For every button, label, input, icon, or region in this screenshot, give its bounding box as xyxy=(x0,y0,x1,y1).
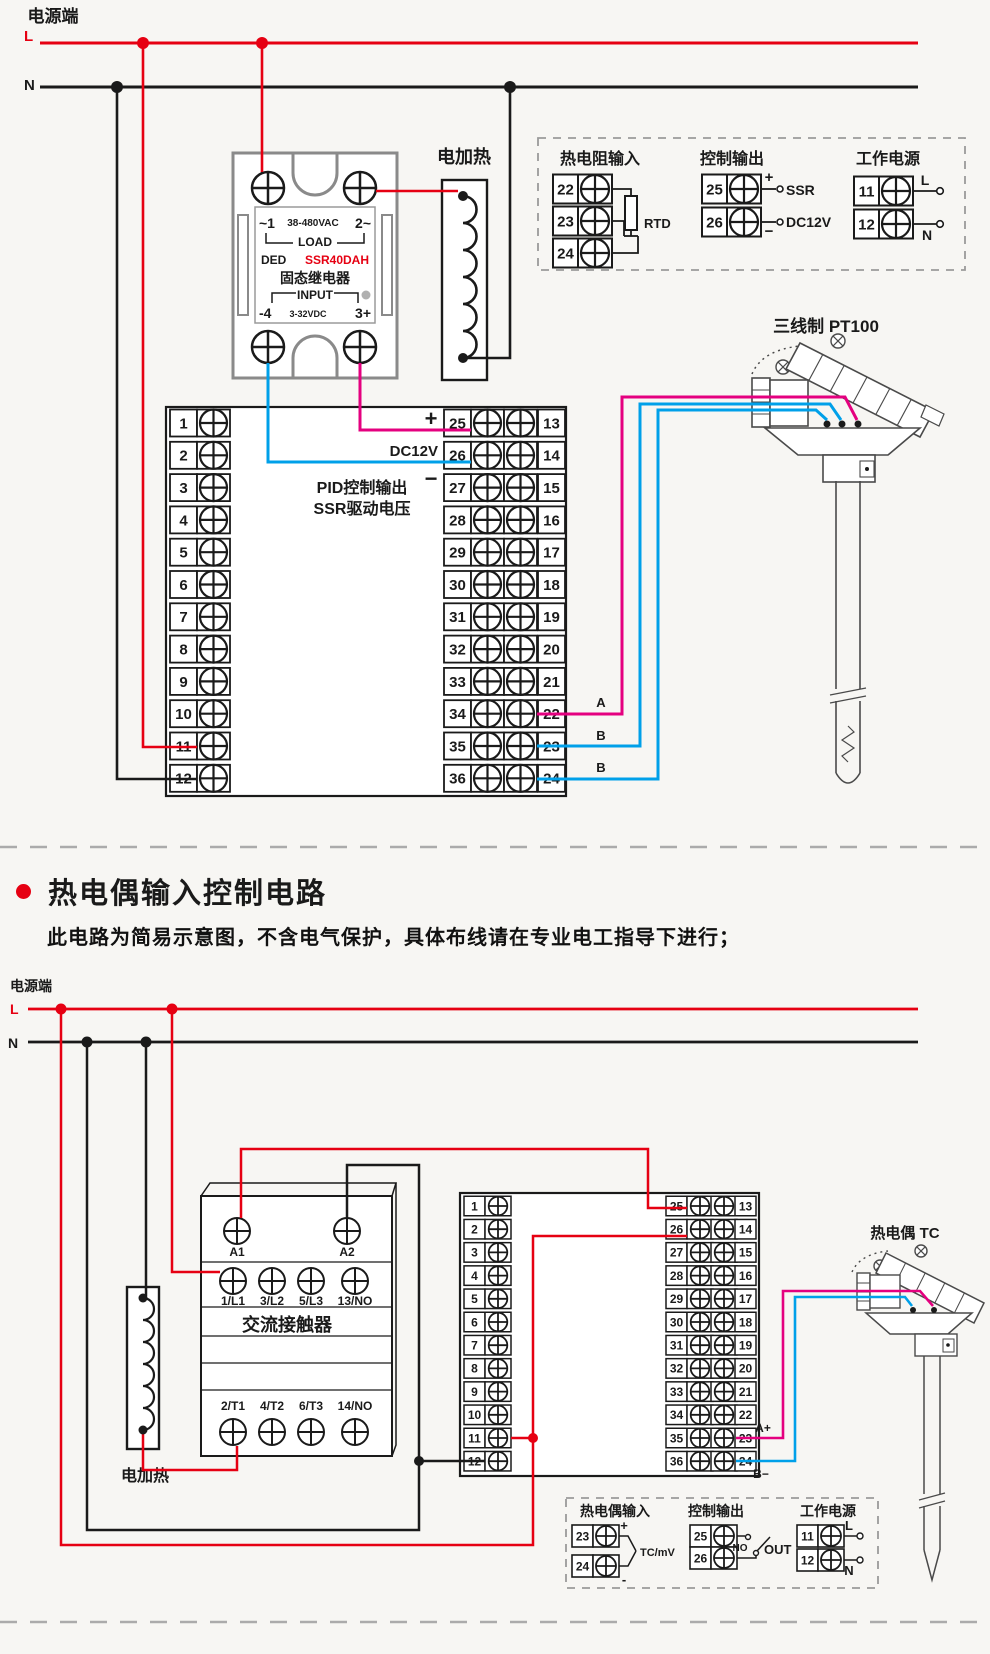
terminal-number: 24 xyxy=(576,1559,590,1573)
screw-terminal xyxy=(715,1359,734,1378)
screw-terminal xyxy=(200,571,227,598)
screw-terminal xyxy=(691,1429,710,1448)
screw-terminal xyxy=(200,603,227,630)
screw-terminal xyxy=(298,1419,324,1445)
open-terminal-icon xyxy=(777,186,783,192)
junction-dot xyxy=(855,421,862,428)
control-output-title: 控制输出 xyxy=(700,149,764,168)
screw-terminal xyxy=(220,1268,246,1294)
screw-terminal xyxy=(882,210,910,238)
shape xyxy=(919,1501,945,1508)
screw-terminal xyxy=(342,1419,368,1445)
screw-terminal xyxy=(259,1268,285,1294)
wire-label-b: B xyxy=(596,728,605,743)
screw-terminal xyxy=(715,1197,734,1216)
contactor-output-terminal: 6/T3 xyxy=(299,1399,323,1413)
screw-terminal xyxy=(715,1313,734,1332)
terminal-number: 36 xyxy=(449,771,466,788)
terminal-number: 26 xyxy=(670,1223,684,1237)
dc12v-plus: + xyxy=(425,406,438,431)
screw-terminal xyxy=(715,1429,734,1448)
screw-terminal xyxy=(200,700,227,727)
terminal-number: 28 xyxy=(449,512,466,529)
screw-terminal xyxy=(474,733,501,760)
pid-output-label: PID控制输出 xyxy=(317,478,408,497)
terminal-number: 10 xyxy=(468,1408,482,1422)
terminal-number: 12 xyxy=(858,216,875,233)
wire xyxy=(612,189,631,196)
screw-terminal xyxy=(715,1266,734,1285)
heater-label: 电加热 xyxy=(437,146,491,167)
wire xyxy=(619,1551,636,1566)
screw-terminal xyxy=(489,1243,508,1262)
screw-terminal xyxy=(507,603,534,630)
rtd-resistor-icon xyxy=(625,196,637,230)
terminal-number: 25 xyxy=(670,1199,684,1213)
junction-dot xyxy=(865,467,869,471)
junction-dot xyxy=(504,81,516,93)
screw-terminal xyxy=(691,1197,710,1216)
terminal-number: 32 xyxy=(449,642,466,659)
rtd-element-icon xyxy=(842,726,854,762)
out-ssr-label: SSR xyxy=(786,182,815,198)
tc-plus: + xyxy=(620,1518,628,1533)
junction-dot xyxy=(931,1307,937,1313)
working-power-title: 工作电源 xyxy=(800,1503,856,1519)
wire-label-b-minus: B− xyxy=(753,1467,769,1481)
ssr-terminal-2: 2~ xyxy=(355,215,371,231)
terminal-number: 32 xyxy=(670,1362,684,1376)
ssr-voltage: 38-480VAC xyxy=(287,218,339,229)
dc12v-minus: − xyxy=(425,466,438,491)
screw-terminal xyxy=(715,1290,734,1309)
screw-terminal xyxy=(691,1359,710,1378)
junction-dot xyxy=(167,1004,178,1015)
neutral-label: N xyxy=(24,77,35,94)
screw-terminal xyxy=(507,474,534,501)
terminal-number: 24 xyxy=(557,245,574,262)
open-terminal-icon xyxy=(857,1533,863,1539)
terminal-number: 26 xyxy=(694,1551,708,1565)
ssr-input-label: INPUT xyxy=(297,288,334,302)
pt100-title: 三线制 PT100 xyxy=(773,316,879,336)
terminal-number: 33 xyxy=(670,1385,684,1399)
screw-terminal xyxy=(220,1419,246,1445)
terminal-number: 8 xyxy=(179,642,187,659)
screw-terminal xyxy=(730,175,758,203)
wire xyxy=(612,221,624,236)
screw-terminal xyxy=(507,700,534,727)
screw-terminal xyxy=(489,1336,508,1355)
screw-terminal xyxy=(200,733,227,760)
screw-terminal xyxy=(507,571,534,598)
terminal-number: 5 xyxy=(179,545,187,562)
screw-terminal xyxy=(200,636,227,663)
screw-terminal xyxy=(259,1419,285,1445)
screw-terminal xyxy=(507,442,534,469)
junction-dot xyxy=(139,1426,148,1435)
terminal-number: 18 xyxy=(739,1315,753,1329)
terminal-number: 15 xyxy=(543,480,560,497)
contactor-a1: A1 xyxy=(229,1245,245,1259)
terminal-number: 9 xyxy=(179,674,187,691)
wire xyxy=(619,1536,636,1551)
screw-terminal xyxy=(821,1526,841,1546)
junction-dot xyxy=(82,1037,93,1048)
terminal-number: 19 xyxy=(739,1339,753,1353)
terminal-number: 29 xyxy=(449,545,466,562)
wire-label-a: A xyxy=(596,695,606,710)
out-plus: + xyxy=(765,169,774,186)
terminal-number: 21 xyxy=(543,674,560,691)
screw-terminal xyxy=(252,172,284,204)
shape xyxy=(830,688,866,695)
screw-terminal xyxy=(474,539,501,566)
bullet-icon xyxy=(16,884,31,899)
terminal-number: 1 xyxy=(179,415,187,432)
screw-terminal xyxy=(344,331,376,363)
terminal-number: 20 xyxy=(543,642,560,659)
shape xyxy=(442,180,487,380)
terminal-number: 15 xyxy=(739,1246,753,1260)
junction-dot xyxy=(414,1456,424,1466)
screw-terminal xyxy=(507,539,534,566)
terminal-number: 29 xyxy=(670,1292,684,1306)
terminal-number: 28 xyxy=(670,1269,684,1283)
power-terminal-label: 电源端 xyxy=(10,978,52,994)
terminal-number: 22 xyxy=(557,181,574,198)
terminal-number: 19 xyxy=(543,609,560,626)
terminal-number: 13 xyxy=(739,1199,753,1213)
wire-label-a-plus: A+ xyxy=(755,1421,771,1435)
junction-dot xyxy=(111,81,123,93)
terminal-number: 35 xyxy=(670,1431,684,1445)
screw-terminal xyxy=(200,668,227,695)
screw-terminal xyxy=(252,331,284,363)
terminal-number: 27 xyxy=(449,480,466,497)
open-terminal-icon xyxy=(857,1557,863,1563)
contactor-input-terminal: 1/L1 xyxy=(221,1294,245,1308)
terminal-number: 33 xyxy=(449,674,466,691)
terminal-number: 11 xyxy=(801,1529,814,1543)
terminal-number: 30 xyxy=(449,577,466,594)
screw-terminal xyxy=(691,1336,710,1355)
screw-terminal xyxy=(489,1406,508,1425)
junction-dot xyxy=(137,37,149,49)
screw-terminal xyxy=(200,410,227,437)
terminal-number: 31 xyxy=(449,609,466,626)
screw-terminal xyxy=(581,239,609,267)
screw-terminal xyxy=(581,207,609,235)
sensor-body xyxy=(866,1313,972,1334)
rtd-label: RTD xyxy=(644,216,671,231)
screw-terminal xyxy=(474,474,501,501)
rtd-input-title: 热电阻输入 xyxy=(560,149,640,168)
screw-terminal xyxy=(507,410,534,437)
screw-terminal xyxy=(596,1556,616,1576)
power-terminal-label: 电源端 xyxy=(28,6,79,26)
contactor-input-terminal: 13/NO xyxy=(338,1294,373,1308)
live-label: L xyxy=(24,28,33,45)
screw-terminal xyxy=(489,1266,508,1285)
screw-terminal xyxy=(344,172,376,204)
screw-terminal xyxy=(200,506,227,533)
screw-terminal xyxy=(691,1313,710,1332)
live-label: L xyxy=(10,1001,19,1017)
screw-terminal xyxy=(342,1268,368,1294)
screw-terminal xyxy=(691,1290,710,1309)
ssr-drive-label: SSR驱动电压 xyxy=(314,499,411,518)
wire-pt100-b2 xyxy=(537,410,827,779)
screw-terminal xyxy=(507,765,534,792)
screw-terminal xyxy=(489,1359,508,1378)
screw-terminal xyxy=(474,603,501,630)
screw-terminal xyxy=(200,765,227,792)
terminal-number: 6 xyxy=(471,1315,478,1329)
neutral-label: N xyxy=(8,1035,18,1051)
terminal-number: 25 xyxy=(706,181,723,198)
screw-terminal xyxy=(691,1243,710,1262)
screw-terminal xyxy=(691,1220,710,1239)
terminal-number: 34 xyxy=(670,1408,684,1422)
screw-terminal xyxy=(474,765,501,792)
terminal-number: 23 xyxy=(576,1529,590,1543)
junction-dot xyxy=(458,353,468,363)
terminal-number: 20 xyxy=(739,1362,753,1376)
terminal-number: 4 xyxy=(179,512,188,529)
screw-terminal xyxy=(507,733,534,760)
contactor-input-terminal: 5/L3 xyxy=(299,1294,323,1308)
pwr-l-label: L xyxy=(845,1518,853,1533)
shape xyxy=(919,1493,945,1500)
screw-terminal xyxy=(715,1452,734,1471)
terminal-number: 4 xyxy=(471,1269,478,1283)
screw-terminal xyxy=(507,636,534,663)
screw-terminal xyxy=(200,474,227,501)
junction-dot xyxy=(824,421,831,428)
ssr-name: 固态继电器 xyxy=(280,270,351,286)
junction-dot xyxy=(256,37,268,49)
pwr-n-label: N xyxy=(844,1563,853,1578)
terminal-number: 2 xyxy=(179,448,187,465)
screw-terminal xyxy=(715,1382,734,1401)
out-label: OUT xyxy=(764,1542,792,1557)
screw-terminal xyxy=(730,208,758,236)
terminal-number: 1 xyxy=(471,1199,478,1213)
screw-terminal xyxy=(489,1313,508,1332)
screw-terminal xyxy=(474,636,501,663)
contactor-input-terminal: 3/L2 xyxy=(260,1294,284,1308)
section-title: 热电偶输入控制电路 xyxy=(48,870,327,912)
tc-title: 热电偶 TC xyxy=(870,1224,939,1242)
terminal-number: 30 xyxy=(670,1315,684,1329)
screw-terminal xyxy=(489,1429,508,1448)
contactor-output-terminal: 14/NO xyxy=(338,1399,373,1413)
heater xyxy=(442,180,487,380)
tc-minus: - xyxy=(622,1572,626,1587)
terminal-number: 6 xyxy=(179,577,187,594)
screw-terminal xyxy=(581,175,609,203)
no-label: NO xyxy=(733,1543,748,1554)
screw-terminal xyxy=(691,1406,710,1425)
screw-terminal xyxy=(691,1452,710,1471)
tc-junction-tip xyxy=(924,1550,940,1580)
tc-input-title: 热电偶输入 xyxy=(580,1503,650,1519)
shape xyxy=(836,773,860,783)
terminal-number: 14 xyxy=(739,1223,753,1237)
ssr-brand: DED xyxy=(261,253,287,267)
terminal-number: 7 xyxy=(179,609,187,626)
screw-terminal xyxy=(596,1526,616,1546)
working-power-title: 工作电源 xyxy=(856,149,920,168)
wire xyxy=(612,236,638,253)
pwr-l-label: L xyxy=(921,172,930,188)
screw-terminal xyxy=(691,1266,710,1285)
screw-terminal xyxy=(715,1243,734,1262)
terminal-number: 36 xyxy=(670,1455,684,1469)
screw-terminal xyxy=(882,177,910,205)
screw-terminal xyxy=(474,442,501,469)
cap-screw-icon xyxy=(915,1245,927,1257)
screw-terminal xyxy=(489,1197,508,1216)
terminal-number: 5 xyxy=(471,1292,478,1306)
contactor-name: 交流接触器 xyxy=(242,1314,333,1335)
ssr-led-icon xyxy=(362,291,371,300)
screw-terminal xyxy=(474,571,501,598)
ssr-terminal-3: 3+ xyxy=(355,305,371,321)
control-output-title: 控制输出 xyxy=(688,1503,744,1519)
terminal-number: 3 xyxy=(179,480,187,497)
terminal-number: 11 xyxy=(468,1431,481,1445)
screw-terminal xyxy=(474,506,501,533)
shape xyxy=(201,1183,396,1196)
terminal-number: 7 xyxy=(471,1339,478,1353)
terminal-number: 21 xyxy=(739,1385,753,1399)
terminal-number: 25 xyxy=(694,1529,708,1543)
screw-terminal xyxy=(821,1550,841,1570)
screw-terminal xyxy=(714,1548,734,1568)
screw-terminal xyxy=(715,1336,734,1355)
ssr-model: SSR40DAH xyxy=(305,253,369,267)
screw-terminal xyxy=(474,410,501,437)
terminal-number: 3 xyxy=(471,1246,478,1260)
screw-terminal xyxy=(200,442,227,469)
junction-dot xyxy=(946,1343,950,1347)
junction-dot xyxy=(910,1307,916,1313)
terminal-number: 12 xyxy=(801,1553,815,1567)
screw-terminal xyxy=(298,1268,324,1294)
open-terminal-icon xyxy=(937,221,944,228)
terminal-number: 10 xyxy=(175,706,192,723)
screw-terminal xyxy=(474,700,501,727)
terminal-number: 26 xyxy=(706,214,723,231)
terminal-number: 2 xyxy=(471,1223,478,1237)
screw-terminal xyxy=(714,1526,734,1546)
terminal-number: 8 xyxy=(471,1362,478,1376)
ssr-terminal-4: -4 xyxy=(259,305,272,321)
pwr-n-label: N xyxy=(922,227,932,243)
contact-pivot-icon xyxy=(746,1535,751,1540)
ssr-terminal-1: ~1 xyxy=(259,215,275,231)
ssr-load-label: LOAD xyxy=(298,235,332,249)
terminal-number: 22 xyxy=(739,1408,753,1422)
heater xyxy=(127,1287,159,1449)
terminal-number: 31 xyxy=(670,1339,684,1353)
open-terminal-icon xyxy=(777,219,783,225)
tc-mv-label: TC/mV xyxy=(640,1547,676,1559)
terminal-number: 34 xyxy=(449,706,466,723)
screw-terminal xyxy=(715,1406,734,1425)
junction-dot xyxy=(139,1294,148,1303)
contactor-a2: A2 xyxy=(339,1245,355,1259)
screw-terminal xyxy=(715,1220,734,1239)
screw-terminal xyxy=(489,1290,508,1309)
terminal-number: 35 xyxy=(449,738,466,755)
wire-label-b: B xyxy=(596,760,605,775)
junction-dot xyxy=(839,421,846,428)
wiring-diagram-page: 电源端LN电源端LN三线制 PT100热电偶 TC~138-480VAC2~LO… xyxy=(0,0,990,1654)
junction-dot xyxy=(528,1433,538,1443)
sensor-body xyxy=(765,428,920,455)
screw-terminal xyxy=(200,539,227,566)
screw-terminal xyxy=(489,1452,508,1471)
terminal-number: 27 xyxy=(670,1246,684,1260)
screw-terminal xyxy=(224,1218,250,1244)
terminal-number: 16 xyxy=(543,512,560,529)
out-dc12v-label: DC12V xyxy=(786,214,832,230)
section-heading: 热电偶输入控制电路 xyxy=(16,870,327,912)
junction-dot xyxy=(458,191,468,201)
screw-terminal xyxy=(507,668,534,695)
contactor-output-terminal: 2/T1 xyxy=(221,1399,245,1413)
wiring-diagram-svg: 电源端LN电源端LN三线制 PT100热电偶 TC~138-480VAC2~LO… xyxy=(0,0,990,1654)
terminal-number: 17 xyxy=(739,1292,753,1306)
open-terminal-icon xyxy=(937,188,944,195)
out-minus: − xyxy=(765,223,774,240)
screw-terminal xyxy=(334,1218,360,1244)
terminal-number: 18 xyxy=(543,577,560,594)
dc12v-label: DC12V xyxy=(390,443,438,460)
cap-screw-icon xyxy=(831,334,845,348)
screw-terminal xyxy=(489,1382,508,1401)
terminal-number: 11 xyxy=(859,183,875,200)
contactor-output-terminal: 4/T2 xyxy=(260,1399,284,1413)
screw-terminal xyxy=(489,1220,508,1239)
terminal-number: 13 xyxy=(543,415,560,432)
wire xyxy=(737,1556,756,1558)
screw-terminal xyxy=(507,506,534,533)
section-subtitle: 此电路为简易示意图，不含电气保护，具体布线请在专业电工指导下进行； xyxy=(47,921,740,950)
terminal-number: 17 xyxy=(543,545,560,562)
wire-pt100-b1 xyxy=(537,404,841,746)
terminal-number: 16 xyxy=(739,1269,753,1283)
screw-terminal xyxy=(691,1382,710,1401)
junction-dot xyxy=(56,1004,67,1015)
junction-dot xyxy=(141,1037,152,1048)
ssr-input-voltage: 3-32VDC xyxy=(289,309,327,319)
terminal-number: 9 xyxy=(471,1385,478,1399)
screw-terminal xyxy=(474,668,501,695)
terminal-number: 14 xyxy=(543,448,560,465)
terminal-number: 23 xyxy=(557,213,574,230)
